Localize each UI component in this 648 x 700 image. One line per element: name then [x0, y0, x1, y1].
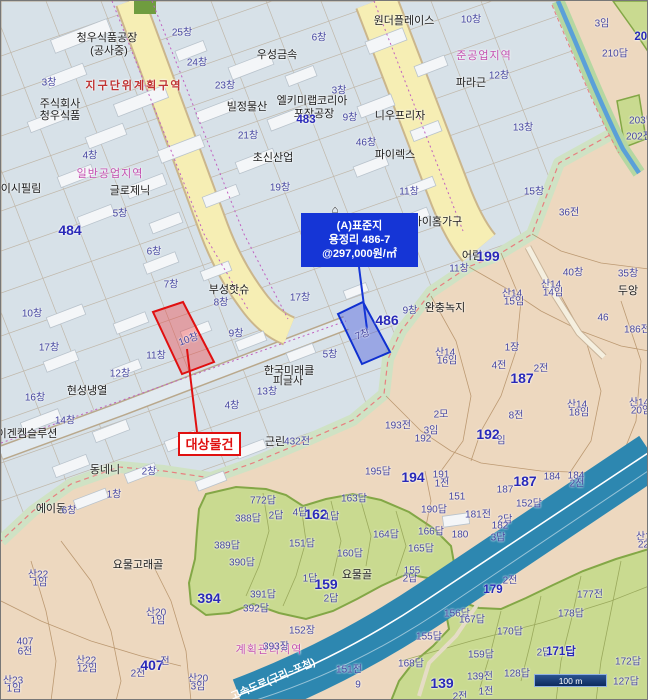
map[interactable]: 청우식품공장(공사중)우성금속주식회사청우식품빌정물산엘키미랩코리아포장공장초신… [0, 0, 648, 700]
map-canvas [1, 1, 648, 700]
greenhouse [134, 1, 156, 14]
standard-lot-callout: (A)표준지 용정리 486-7 @297,000원/㎡ [301, 213, 418, 267]
standard-lot-line2: 용정리 486-7 [301, 233, 418, 247]
subject-property-callout: 대상물건 [178, 432, 241, 456]
standard-lot-line1: (A)표준지 [301, 219, 418, 233]
standard-lot-line3: @297,000원/㎡ [301, 247, 418, 261]
scale-bar: 100 m [534, 674, 607, 687]
